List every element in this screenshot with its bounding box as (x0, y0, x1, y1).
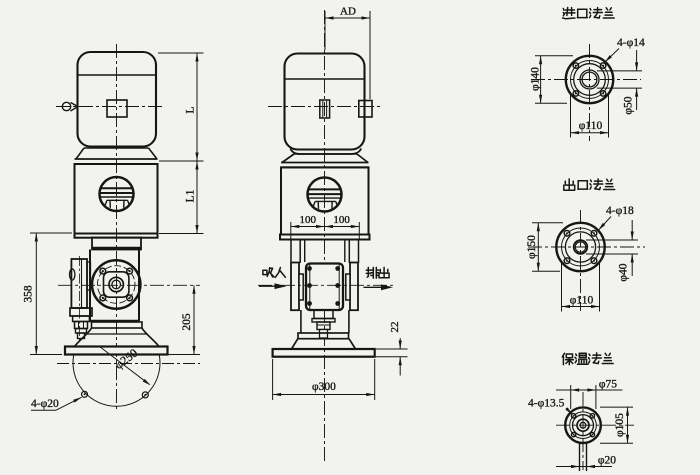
svg-text:358: 358 (23, 285, 35, 303)
svg-text:205: 205 (181, 313, 193, 331)
svg-text:4-φ13.5: 4-φ13.5 (528, 398, 565, 410)
svg-text:φ105: φ105 (614, 413, 626, 437)
svg-text:L1: L1 (185, 189, 197, 202)
svg-text:φ300: φ300 (312, 381, 336, 393)
svg-text:φ40: φ40 (618, 263, 630, 281)
svg-text:φ110: φ110 (570, 295, 594, 307)
svg-text:φ110: φ110 (579, 120, 603, 132)
svg-text:100: 100 (333, 214, 350, 226)
svg-text:100: 100 (300, 214, 317, 226)
svg-text:L: L (185, 106, 197, 113)
svg-text:φ75: φ75 (599, 379, 617, 391)
svg-text:φ20: φ20 (598, 455, 616, 467)
svg-text:4-φ18: 4-φ18 (606, 205, 634, 217)
svg-text:φ140: φ140 (530, 67, 542, 91)
svg-text:AD: AD (340, 6, 356, 18)
svg-text:4-φ14: 4-φ14 (617, 37, 645, 49)
svg-text:4-φ20: 4-φ20 (31, 398, 59, 410)
svg-text:φ150: φ150 (526, 235, 538, 259)
svg-text:22: 22 (389, 322, 401, 333)
svg-text:φ50: φ50 (623, 96, 635, 114)
